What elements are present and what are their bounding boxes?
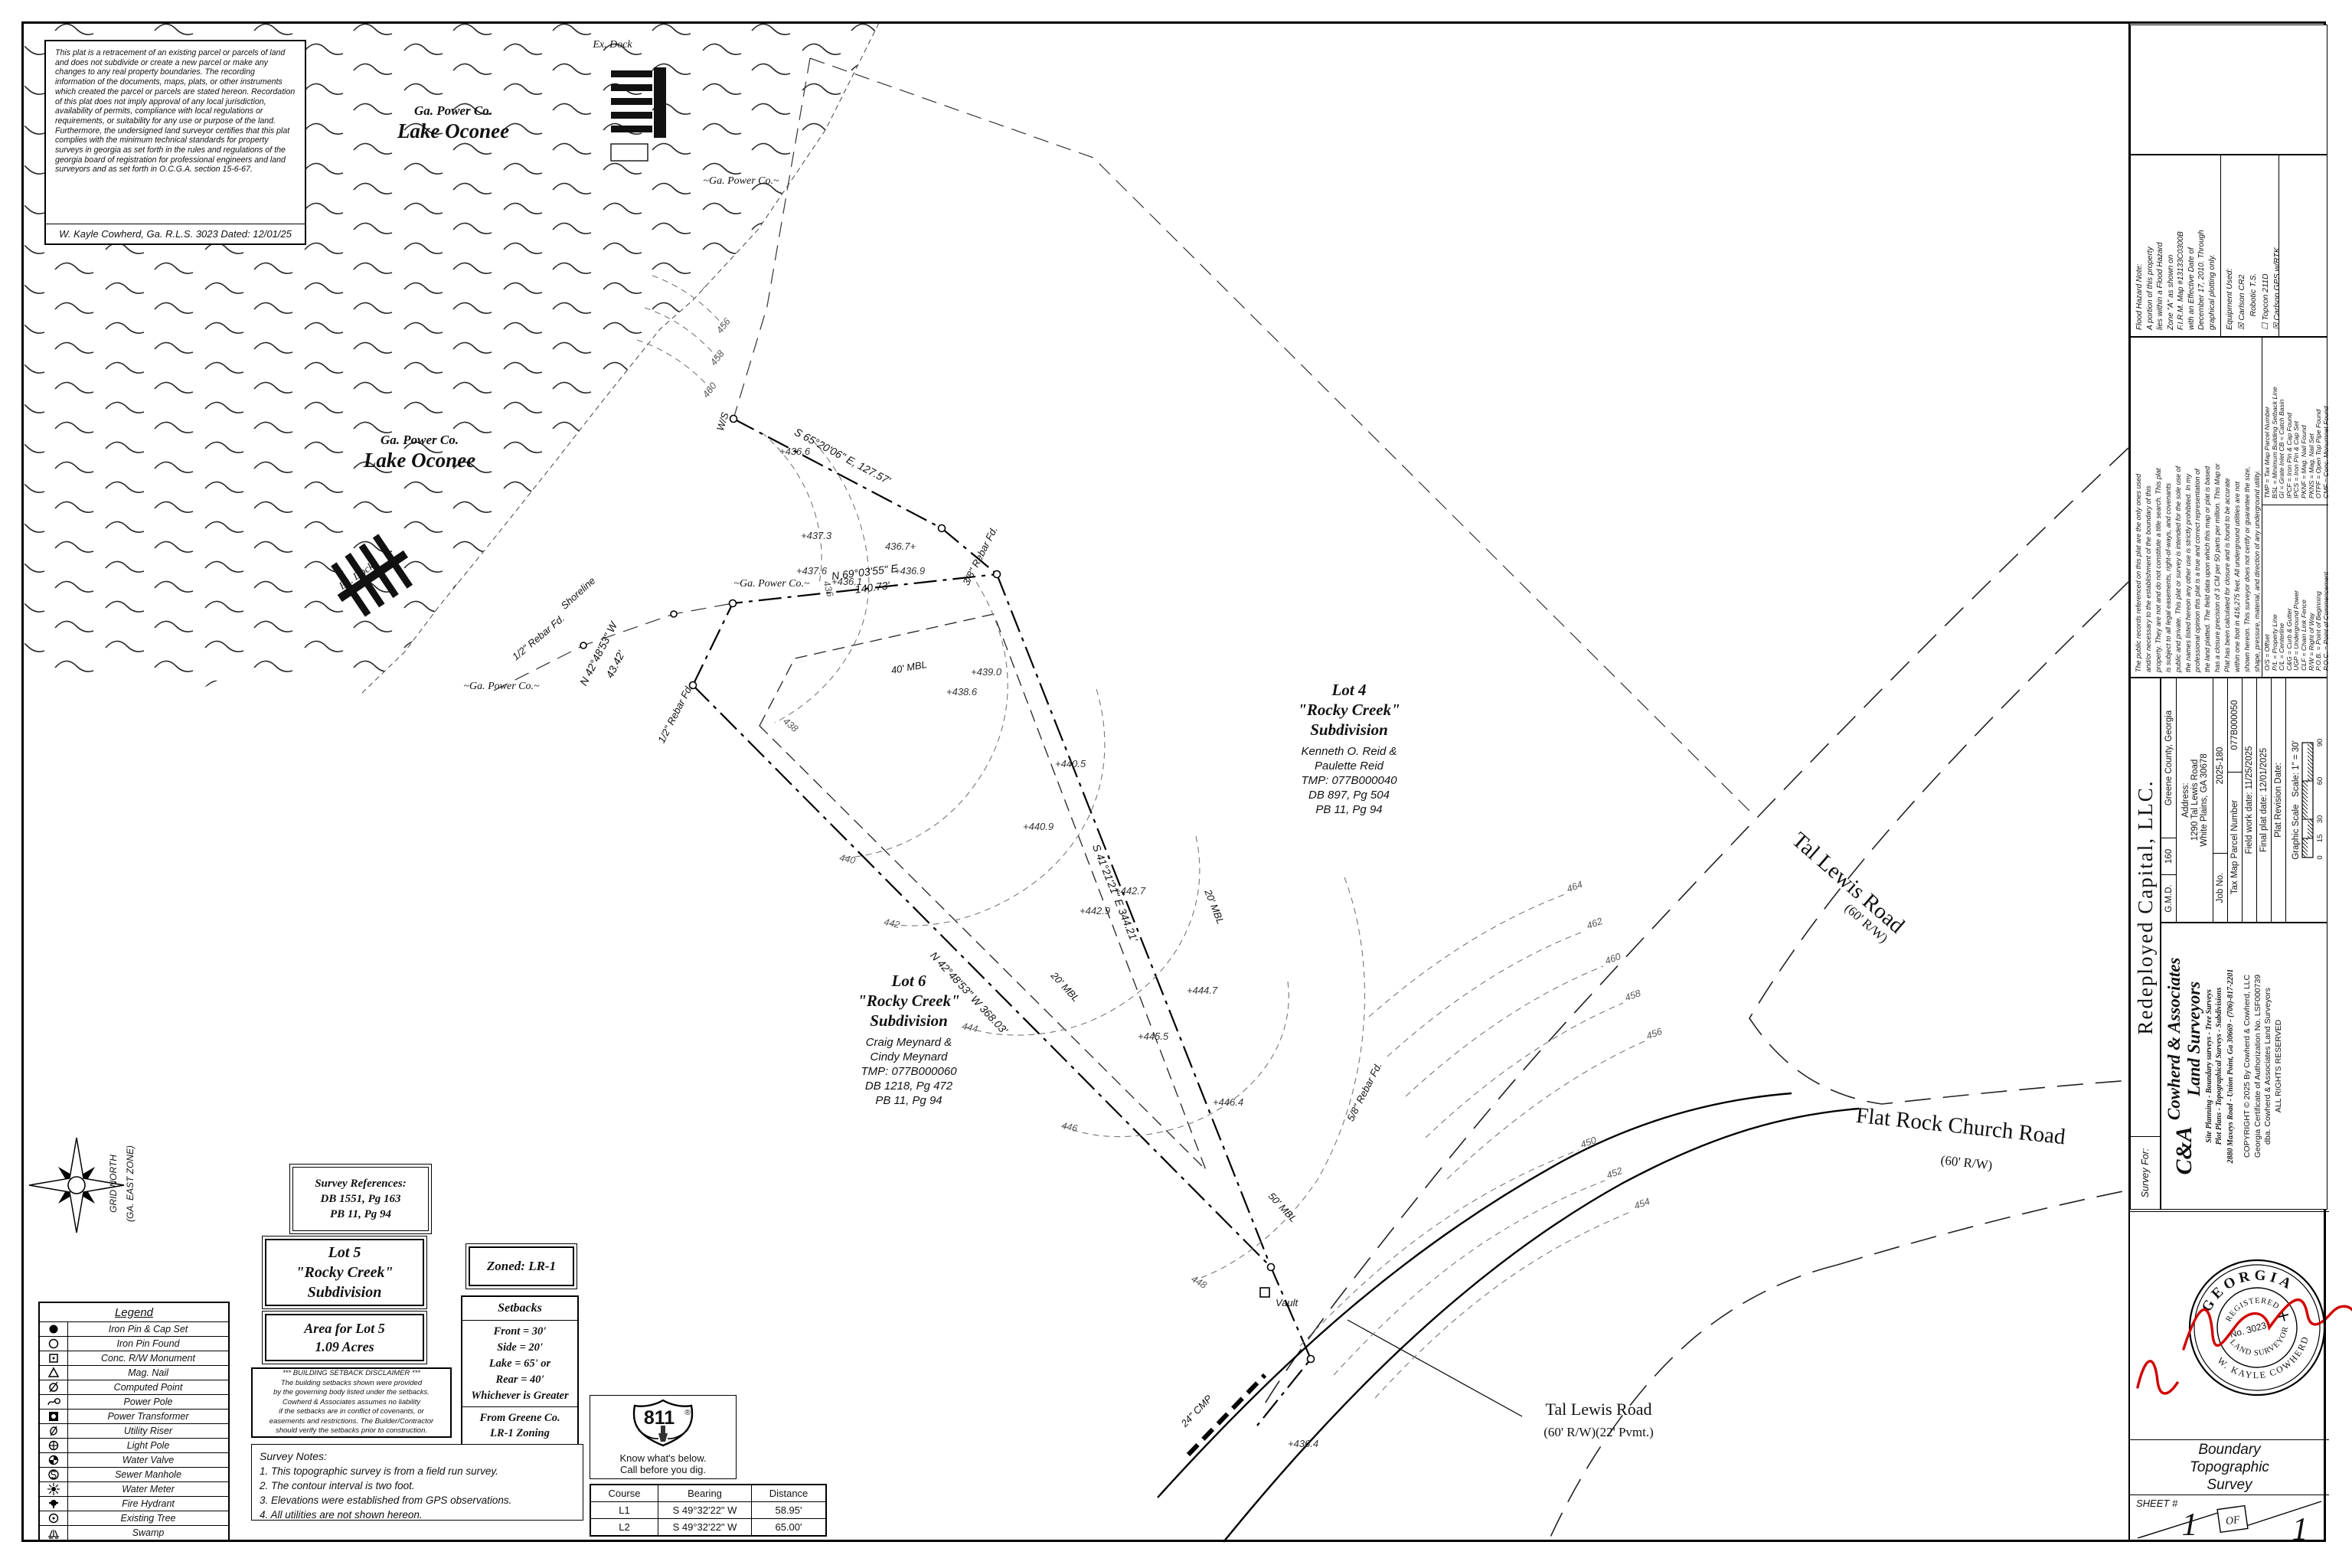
final-plat-date: Final plat date: 12/01/2025 (2257, 678, 2272, 922)
water-valve-icon (40, 1453, 68, 1467)
sewer-manhole-icon (40, 1468, 68, 1481)
company-address: 2880 Maxeys Road - Union Point, Ga 30669… (2226, 923, 2236, 1209)
field-work-date: Field work date: 11/25/2025 (2243, 678, 2257, 922)
job-no-label: Job No. (2213, 853, 2227, 922)
equipment-used: Equipment Used: ☒ Carlson CR2 Robotic T.… (2221, 155, 2279, 336)
fire-hydrant-icon (40, 1497, 68, 1511)
course-table-header: Course Bearing Distance (591, 1485, 825, 1502)
company-services-1: Site Planning - Boundary surveys - Tree … (2204, 923, 2214, 1209)
survey-plat-sheet: GRID NORTH (GA. EAST ZONE) Ga. Power Co.… (0, 0, 2352, 1568)
company-copyright: COPYRIGHT © 2025 By Cowherd & Cowherd, L… (2243, 923, 2284, 1209)
zoning-box: Zoned: LR-1 (469, 1246, 574, 1286)
company-name-2: Land Surveyors (2184, 982, 2203, 1096)
building-setback-disclaimer: *** BUILDING SETBACK DISCLAIMER *** The … (251, 1367, 452, 1438)
graphic-scale: Graphic Scale Scale: 1" = 30' 0 15 (2286, 678, 2328, 922)
utility-riser-icon (40, 1424, 68, 1438)
survey-for-label: Survey For: (2131, 1136, 2160, 1209)
svg-text:60: 60 (2316, 777, 2324, 786)
setbacks-source: From Greene Co. LR-1 Zoning (462, 1406, 577, 1444)
survey-notes-text: 1. This topographic survey is from a fie… (260, 1464, 575, 1522)
job-info-table: G.M.D. 160 Greene County, Georgia Addres… (2161, 678, 2327, 923)
iron-pin-cap-set-icon (40, 1322, 68, 1336)
lot4-info: Lot 4 "Rocky Creek" Subdivision Kenneth … (1242, 680, 1456, 817)
plat-revision-date: Plat Revision Date: (2272, 678, 2286, 922)
empty-cell (2130, 24, 2327, 155)
seal-cell (2130, 1211, 2329, 1439)
survey-notes-title: Survey Notes: (260, 1449, 575, 1464)
setbacks-box: Setbacks Front = 30' Side = 20' Lake = 6… (461, 1295, 579, 1445)
job-no: 2025-180 (2213, 678, 2227, 853)
computed-point-icon (40, 1380, 68, 1394)
course-table: Course Bearing Distance L1 S 49°32'22" W… (590, 1484, 827, 1537)
svg-text:1: 1 (2292, 1512, 2308, 1543)
flood-note-block: Flood Hazard Note: A portion of this pro… (2130, 155, 2327, 337)
lot5-box: Lot 5 "Rocky Creek" Subdivision (265, 1239, 424, 1306)
lot6-info: Lot 6 "Rocky Creek" Subdivision Craig Me… (798, 971, 1020, 1108)
abbreviations-b: O/S = Offset P/L = Property Line C/L = C… (2262, 505, 2328, 677)
plat-disclaimer-text: This plat is a retracement of an existin… (46, 41, 305, 175)
survey-notes-box: Survey Notes: 1. This topographic survey… (251, 1444, 583, 1521)
company-block: C&ACowherd & Associates Land Surveyors S… (2161, 923, 2327, 1210)
title-block: Survey For: Redeployed Capital, LLC. C&A… (2130, 24, 2327, 1210)
company-services-2: Plot Plans - Topographical Surveys - Sub… (2214, 923, 2224, 1209)
sheet-number-cell: SHEET # 1 OF 1 (2130, 1494, 2329, 1543)
svg-text:15: 15 (2316, 835, 2324, 843)
parcel-number: 077B000050 (2228, 678, 2242, 772)
abbreviations-a: TMP = Tax Map Parcel Number BSL = Minimu… (2262, 338, 2328, 505)
table-row: L2 S 49°32'22" W 65.00' (591, 1519, 825, 1535)
public-records-note: The public records referenced on this pl… (2131, 338, 2262, 677)
sheet-number-label: SHEET # (2136, 1498, 2177, 1509)
survey-references-box: Survey References: DB 1551, Pg 163 PB 11… (292, 1167, 429, 1231)
table-row: L1 S 49°32'22" W 58.95' (591, 1502, 825, 1519)
records-note-block: The public records referenced on this pl… (2130, 337, 2327, 678)
svg-text:®: ® (684, 1409, 691, 1417)
setbacks-title: Setbacks (462, 1297, 577, 1321)
parcel-label: Tax Map Parcel Number (2228, 772, 2242, 922)
area-box: Area for Lot 5 1.09 Acres (265, 1314, 424, 1361)
power-pole-icon (40, 1395, 68, 1409)
document-type: Boundary Topographic Survey (2130, 1439, 2329, 1494)
svg-text:0: 0 (2316, 855, 2324, 859)
client-name: Redeployed Capital, LLC. (2134, 678, 2158, 1136)
mag-nail-icon (40, 1366, 68, 1380)
svg-text:30: 30 (2316, 815, 2324, 824)
svg-text:811: 811 (644, 1407, 675, 1429)
gmd-label: G.M.D. (2161, 874, 2176, 922)
legend-title: Legend (40, 1303, 228, 1322)
scale-bar: 0 15 30 60 90 (2301, 724, 2324, 877)
company-name: Cowherd & Associates (2164, 958, 2184, 1121)
flood-hazard-note: Flood Hazard Note: A portion of this pro… (2131, 155, 2221, 336)
svg-text:90: 90 (2316, 739, 2324, 747)
call-811-logo: 811 ® (626, 1398, 700, 1449)
svg-text:1: 1 (2182, 1508, 2198, 1543)
county: Greene County, Georgia (2161, 678, 2176, 838)
plat-disclaimer-box: This plat is a retracement of an existin… (44, 40, 306, 245)
conc-rw-monument-icon (40, 1351, 68, 1365)
surveyor-signature-line: W. Kayle Cowherd, Ga. R.L.S. 3023 Dated:… (46, 224, 305, 243)
setbacks-values: Front = 30' Side = 20' Lake = 65' or Rea… (471, 1321, 568, 1406)
water-meter-icon (40, 1482, 68, 1496)
site-address: Address: 1290 Tal Lewis Road White Plain… (2177, 678, 2213, 922)
swamp-icon (40, 1526, 68, 1540)
existing-tree-icon (40, 1511, 68, 1525)
svg-text:OF: OF (2225, 1514, 2241, 1528)
legend: Legend Iron Pin & Cap Set Iron Pin Found… (38, 1302, 230, 1541)
company-monogram: C&A (2171, 1126, 2197, 1174)
iron-pin-found-icon (40, 1337, 68, 1351)
light-pole-icon (40, 1439, 68, 1452)
survey-for-strip: Survey For: Redeployed Capital, LLC. (2130, 678, 2161, 1210)
gmd-value: 160 (2161, 838, 2176, 874)
power-transformer-icon (40, 1410, 68, 1423)
call-811-box: 811 ® Know what's below. Call before you… (590, 1395, 737, 1479)
